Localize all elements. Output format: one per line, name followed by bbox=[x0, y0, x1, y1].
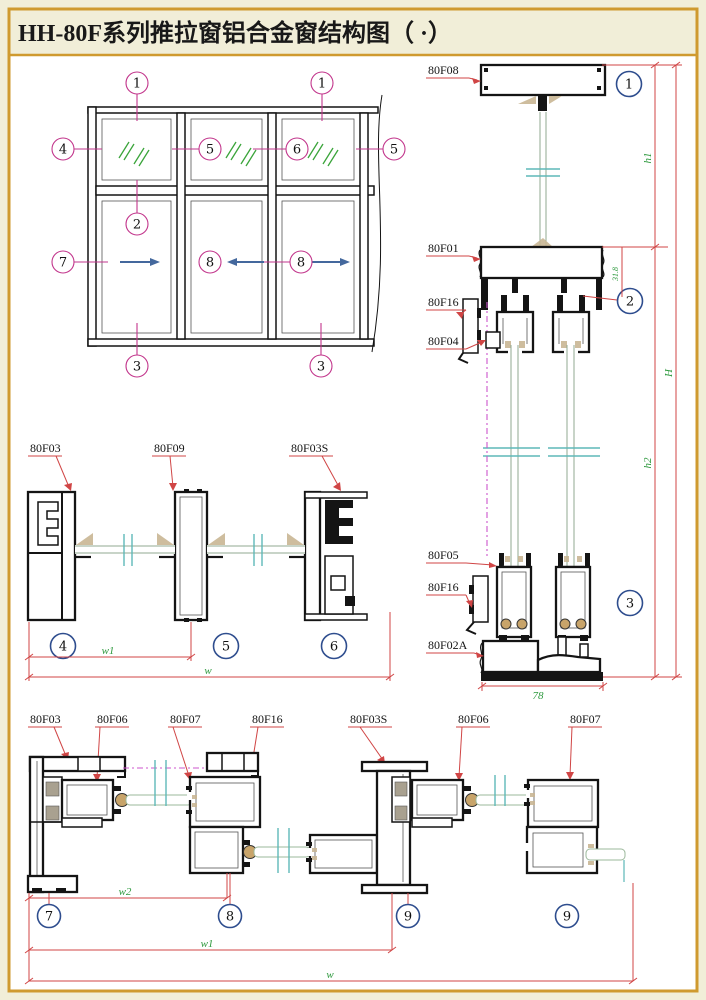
callout-6: 6 bbox=[293, 143, 301, 158]
structure-drawing: HH-80F系列推拉窗铝合金窗结构图（ ·） bbox=[0, 0, 706, 1000]
dim-w1: w1 bbox=[201, 938, 214, 950]
profile-80F16-upper bbox=[459, 299, 481, 363]
dim-w1: w1 bbox=[102, 645, 115, 657]
part-label-80F04: 80F04 bbox=[428, 334, 459, 348]
dim-overlap: 31.8 bbox=[611, 267, 620, 282]
part-label-80F07-right: 80F07 bbox=[570, 712, 601, 726]
part-label-80F09: 80F09 bbox=[154, 441, 185, 455]
part-label-80F16-lower: 80F16 bbox=[428, 580, 459, 594]
callout-2: 2 bbox=[626, 295, 634, 310]
dim-w2: w2 bbox=[119, 886, 132, 898]
callout-5: 5 bbox=[222, 640, 230, 655]
part-label-80F06-right: 80F06 bbox=[458, 712, 489, 726]
callout-4: 4 bbox=[59, 143, 67, 158]
callout-2: 2 bbox=[133, 218, 141, 233]
profile-80F03-mid bbox=[28, 492, 75, 620]
meeting-channel-box bbox=[306, 835, 377, 873]
part-label-80F08: 80F08 bbox=[428, 63, 459, 77]
callout-3: 3 bbox=[317, 360, 325, 375]
dim-h2: h2 bbox=[642, 457, 654, 469]
callout-9: 9 bbox=[563, 910, 571, 925]
callout-4: 4 bbox=[59, 640, 67, 655]
callout-1: 1 bbox=[133, 77, 141, 92]
callout-1: 1 bbox=[318, 77, 326, 92]
part-label-80F03: 80F03 bbox=[30, 441, 61, 455]
part-label-80F02A: 80F02A bbox=[428, 638, 468, 652]
callout-8: 8 bbox=[297, 256, 305, 271]
part-label-80F03S: 80F03S bbox=[350, 712, 387, 726]
page-title: HH-80F系列推拉窗铝合金窗结构图（ ·） bbox=[18, 19, 452, 47]
callout-5: 5 bbox=[390, 143, 398, 158]
callout-7: 7 bbox=[45, 910, 53, 925]
callout-5: 5 bbox=[206, 143, 214, 158]
callout-8: 8 bbox=[226, 910, 234, 925]
part-label-80F16: 80F16 bbox=[252, 712, 283, 726]
callout-8: 8 bbox=[206, 256, 214, 271]
profile-80F09 bbox=[175, 489, 207, 622]
part-label-80F06: 80F06 bbox=[97, 712, 128, 726]
part-label-80F05: 80F05 bbox=[428, 548, 459, 562]
part-label-80F03: 80F03 bbox=[30, 712, 61, 726]
dim-h1: h1 bbox=[642, 153, 654, 164]
dim-78: 78 bbox=[533, 690, 545, 702]
part-label-80F01: 80F01 bbox=[428, 241, 459, 255]
callout-1: 1 bbox=[625, 78, 633, 93]
dim-H: H bbox=[663, 368, 675, 378]
callout-7: 7 bbox=[59, 256, 67, 271]
dim-w: w bbox=[326, 969, 334, 981]
callout-9: 9 bbox=[404, 910, 412, 925]
dim-w: w bbox=[204, 665, 212, 677]
callout-3: 3 bbox=[626, 597, 634, 612]
callout-3: 3 bbox=[133, 360, 141, 375]
part-label-80F16: 80F16 bbox=[428, 295, 459, 309]
drawing-page: HH-80F系列推拉窗铝合金窗结构图（ ·） bbox=[0, 0, 706, 1000]
callout-6: 6 bbox=[330, 640, 338, 655]
part-label-80F03S: 80F03S bbox=[291, 441, 328, 455]
profile-80F04 bbox=[486, 332, 500, 348]
part-label-80F07: 80F07 bbox=[170, 712, 201, 726]
